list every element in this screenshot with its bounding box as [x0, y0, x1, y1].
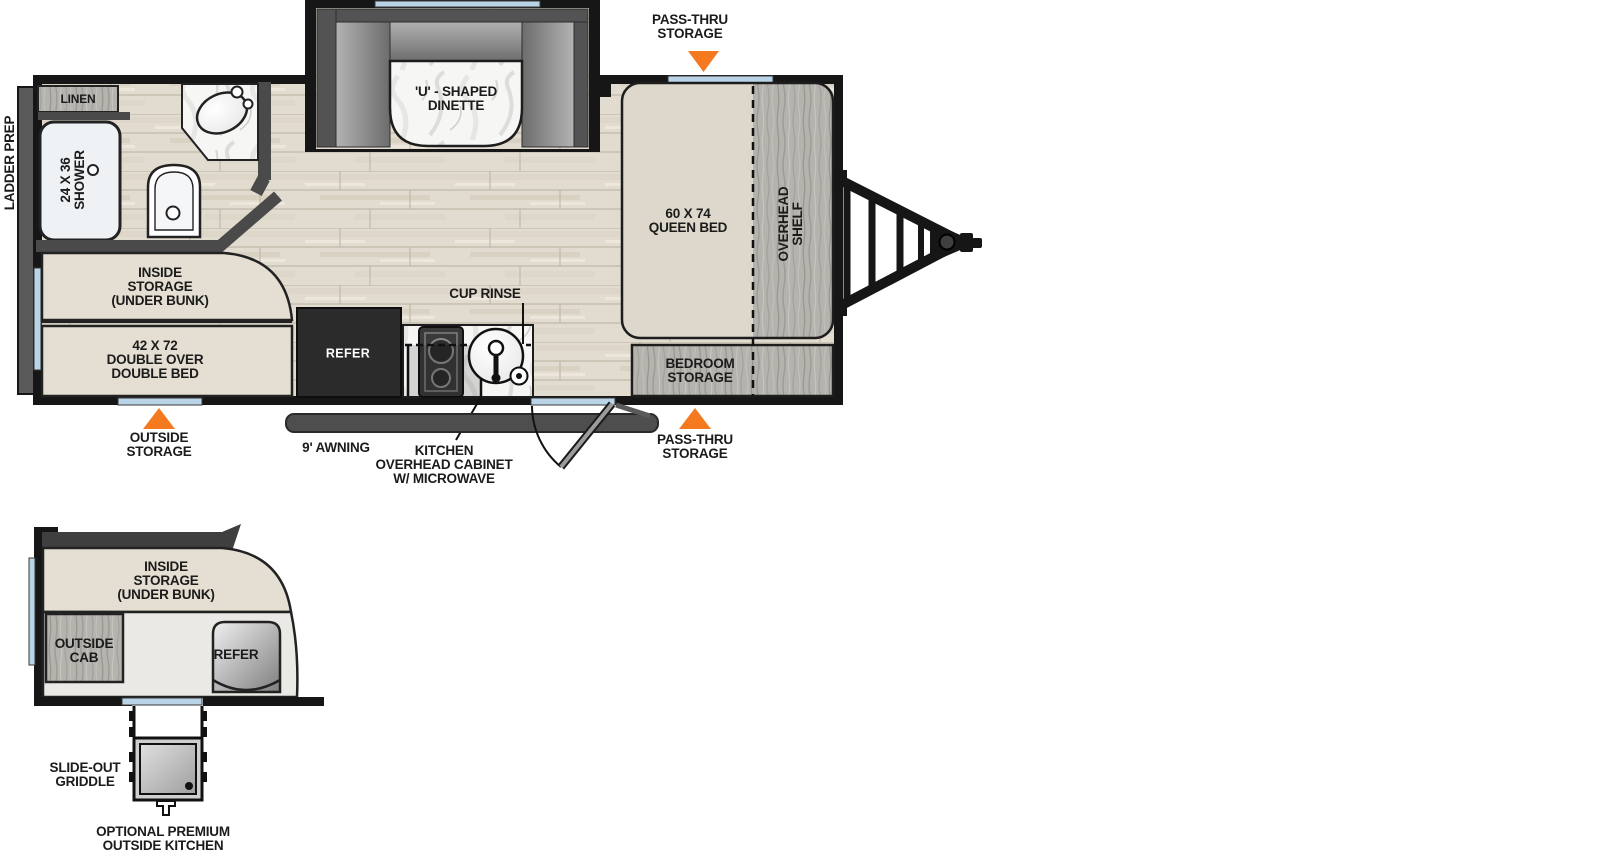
kitchen-faucet — [489, 341, 503, 355]
label-queen-bed: 60 X 74 QUEEN BED — [649, 207, 727, 235]
label-pass-thru-top: PASS-THRU STORAGE — [652, 13, 728, 41]
floorplan-canvas: LADDER PREP LINEN 24 X 36 SHOWER 'U' - S… — [0, 0, 1600, 852]
faucet-dot — [232, 87, 243, 98]
label-kitchen-cabinet: KITCHEN OVERHEAD CABINET W/ MICROWAVE — [375, 444, 512, 486]
tongue-jack — [940, 235, 955, 250]
label-awning: 9' AWNING — [302, 441, 370, 455]
label-ladder-prep: LADDER PREP — [3, 116, 17, 211]
label-inside-storage-2: INSIDE STORAGE (UNDER BUNK) — [117, 560, 214, 602]
arrow-pass-thru-top — [688, 51, 719, 72]
side-window — [29, 558, 35, 665]
griddle-door-opening — [122, 698, 202, 705]
label-inside-storage: INSIDE STORAGE (UNDER BUNK) — [111, 266, 208, 308]
dinette-window — [375, 1, 540, 7]
floorplan-drawing — [0, 0, 1600, 852]
front-trim — [42, 532, 224, 548]
label-overhead-shelf: OVERHEAD SHELF — [777, 187, 805, 262]
label-linen: LINEN — [60, 93, 95, 105]
entry-door-opening — [531, 398, 615, 405]
griddle-latch — [157, 801, 175, 815]
outside-storage-door — [118, 398, 202, 405]
label-outside-storage: OUTSIDE STORAGE — [126, 431, 191, 459]
label-slide-out-griddle: SLIDE-OUT GRIDDLE — [50, 761, 121, 789]
main-floorplan — [18, 0, 982, 467]
label-refer-main: REFER — [326, 348, 370, 361]
label-outside-cab: OUTSIDE CAB — [55, 637, 114, 665]
bunk-window — [34, 268, 41, 370]
dinette-slideout — [305, 0, 600, 152]
arrow-outside-storage — [143, 408, 175, 429]
arrow-pass-thru-bottom — [679, 408, 711, 429]
label-shower: 24 X 36 SHOWER — [59, 150, 87, 210]
shower-drain — [88, 165, 98, 175]
label-pass-thru-bottom: PASS-THRU STORAGE — [657, 433, 733, 461]
faucet-dot — [244, 100, 253, 109]
griddle-slide — [129, 706, 207, 815]
toilet-flush — [167, 207, 180, 220]
trailer-tongue — [834, 170, 982, 316]
coupler — [960, 233, 973, 252]
label-optional-kitchen: OPTIONAL PREMIUM OUTSIDE KITCHEN — [96, 825, 230, 852]
label-dinette: 'U' - SHAPED DINETTE — [415, 85, 497, 113]
label-refer-2: REFER — [214, 648, 259, 662]
label-cup-rinse: CUP RINSE — [449, 287, 520, 301]
label-double-bed: 42 X 72 DOUBLE OVER DOUBLE BED — [107, 339, 204, 381]
label-bedroom-storage: BEDROOM STORAGE — [665, 357, 734, 385]
ladder-prep-bar — [18, 87, 34, 394]
